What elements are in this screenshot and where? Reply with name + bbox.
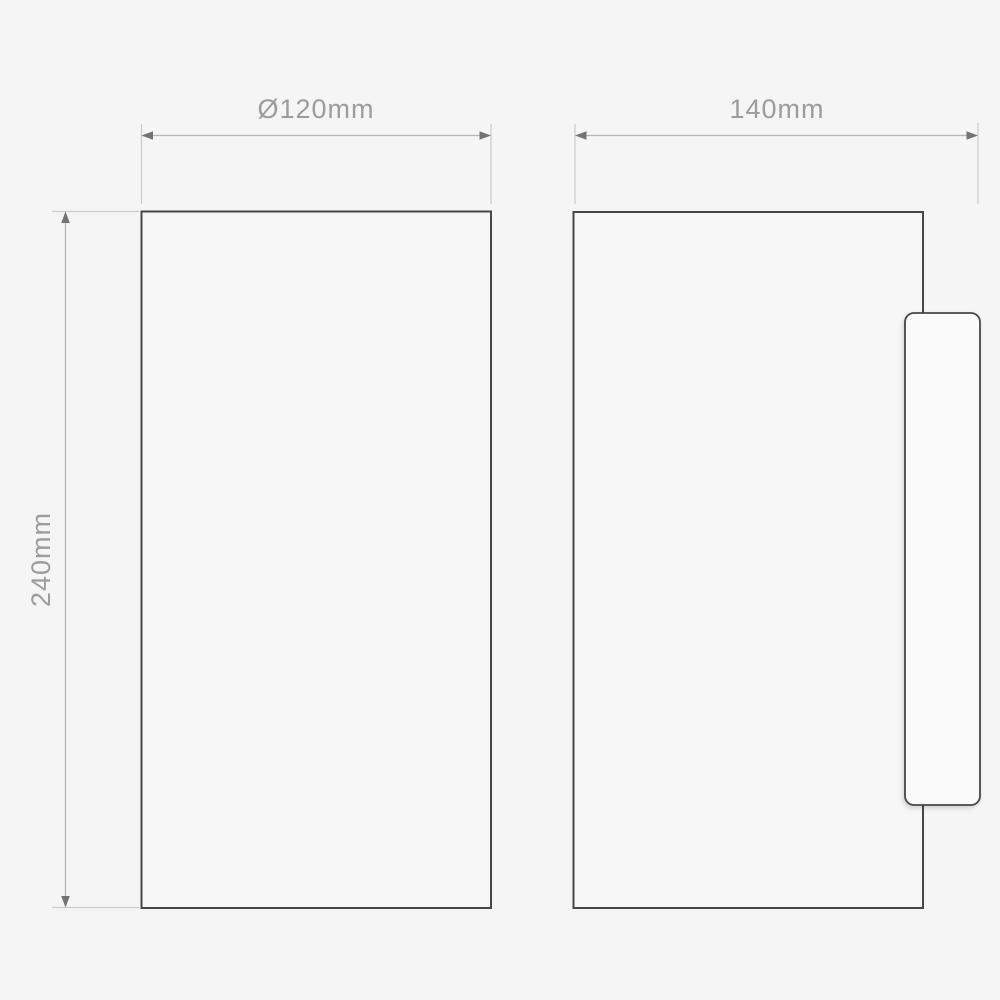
side-view: 140mm bbox=[574, 94, 981, 908]
dimension-drawing-canvas: Ø120mm 240mm 140mm bbox=[0, 0, 1000, 1000]
front-view-outline bbox=[142, 212, 492, 909]
side-view-backplate bbox=[905, 313, 980, 805]
side-width-label: 140mm bbox=[729, 94, 824, 124]
front-width-label: Ø120mm bbox=[257, 94, 374, 124]
side-view-outline bbox=[574, 212, 924, 908]
front-height-label: 240mm bbox=[26, 512, 56, 607]
